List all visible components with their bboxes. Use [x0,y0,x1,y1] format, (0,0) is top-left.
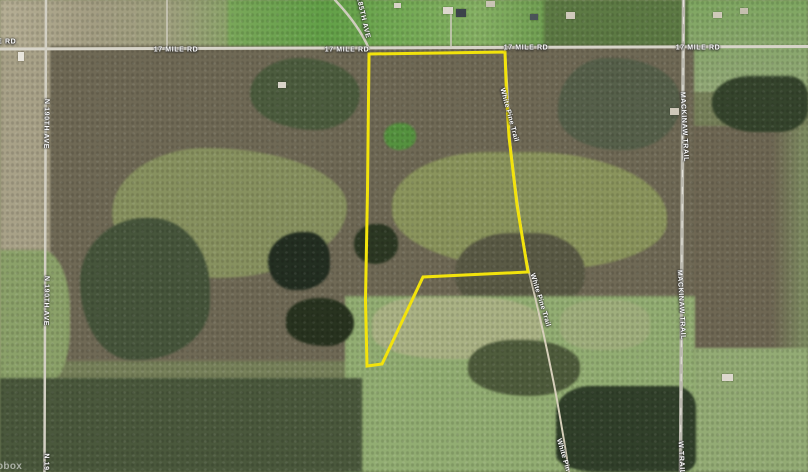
road-label: 17 MILE RD [676,45,721,52]
road-label-partial: White Pin [555,438,571,472]
road-label-partial: W TRAIL [677,441,686,472]
mapbox-watermark: obox [0,461,22,472]
road-label: 17 MILE RD [325,47,370,54]
road-label-partial: N 19 [42,453,49,470]
road-label: N 190TH AVE [42,99,50,149]
road-label: N 190TH AVE [42,276,50,326]
road-labels-layer: 17 MILE RD17 MILE RD17 MILE RD17 MILE RD… [0,0,808,472]
aerial-map-canvas[interactable]: 17 MILE RD17 MILE RD17 MILE RD17 MILE RD… [0,0,808,472]
road-label: White Pine Trail [498,87,519,142]
road-label-partial: 17 MILE RD [0,39,16,46]
road-label: MACKINAW TRAIL [679,92,690,163]
road-label: 185TH AVE [355,0,371,39]
road-label: 17 MILE RD [504,45,549,52]
road-label: White Pine Trail [529,273,552,328]
road-label: 17 MILE RD [154,47,199,54]
road-label: MACKINAW TRAIL [676,270,687,341]
